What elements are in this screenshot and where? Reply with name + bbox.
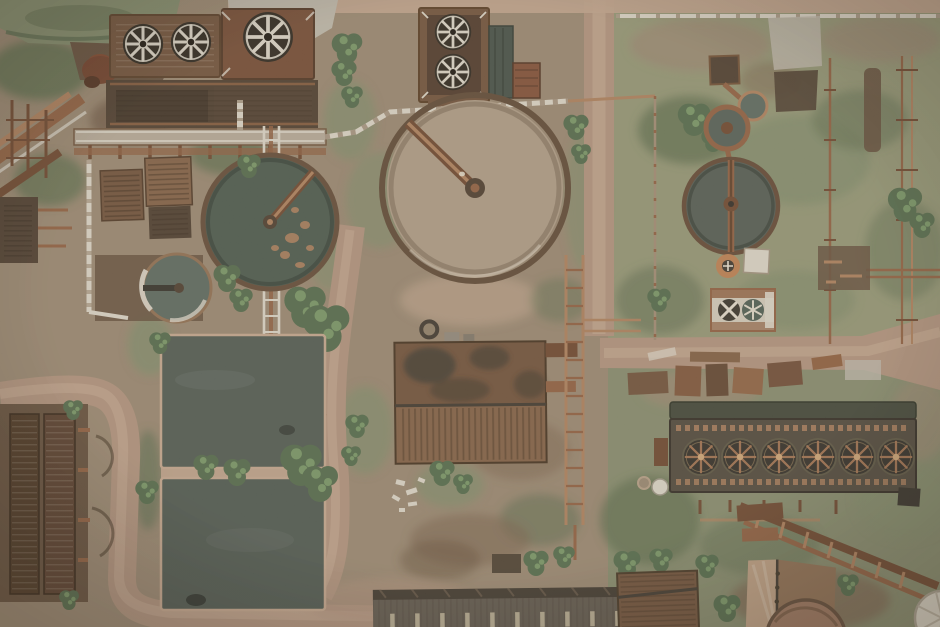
aerial-photo-canvas xyxy=(0,0,940,627)
aerial-photo xyxy=(0,0,940,627)
vignette xyxy=(0,0,940,627)
